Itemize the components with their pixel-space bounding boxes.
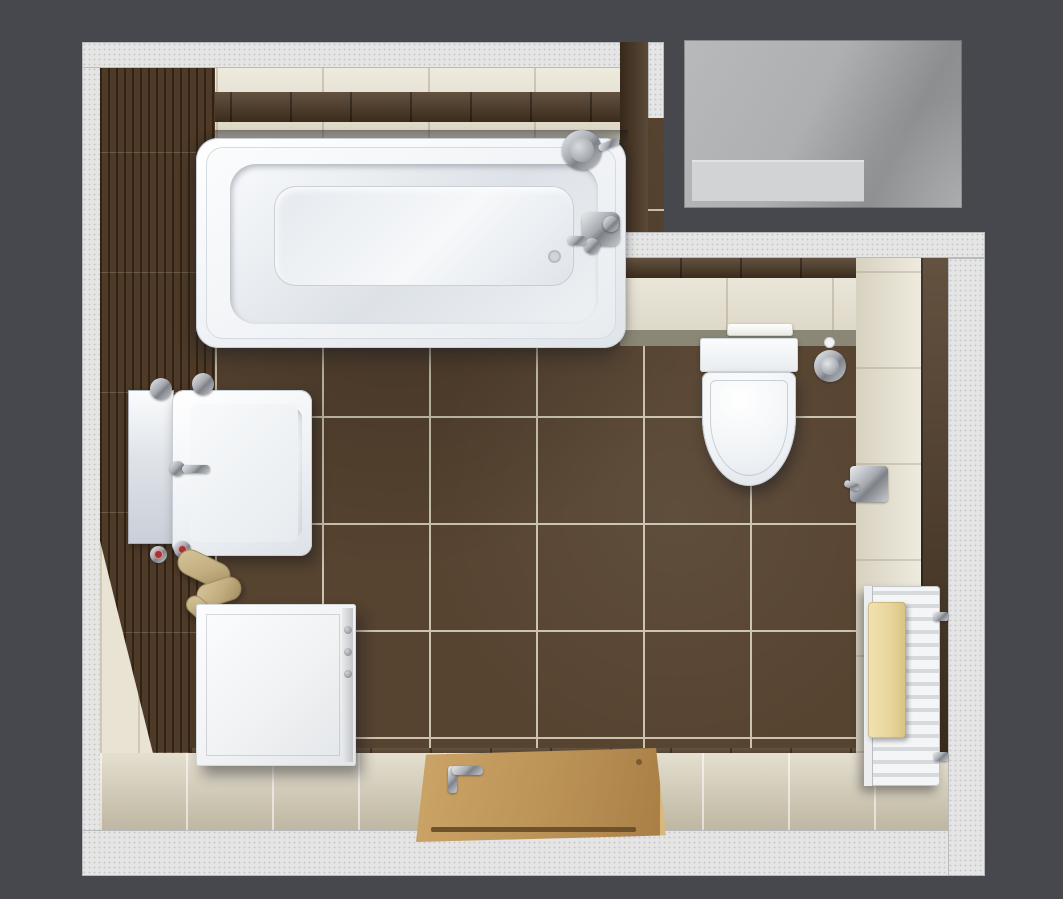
roll-holder-cap [824,337,835,348]
bathtub-drain [548,250,561,263]
washing-machine [196,604,356,766]
angle-valves [150,546,167,563]
flush-plate [727,323,793,336]
radiator-bracket [934,612,948,621]
mirror [128,390,174,544]
shower-head-face [570,138,594,162]
wall-tumblers [150,378,172,400]
mixer-spout [568,236,586,245]
outer-wall-top-right [620,232,985,258]
towel [868,602,906,738]
outer-wall-right [948,258,985,876]
machine-knob-icon [344,648,352,656]
sink-tap-spout [182,465,210,473]
wall-border-strip-top-right [620,258,856,278]
toilet-seat [710,380,788,476]
washbasin-bowl-inner [190,404,298,542]
mixer-handle-icon [584,238,600,254]
washing-machine-lid [206,614,340,756]
washbasin [172,390,312,556]
bathroom-render [0,0,1063,899]
valve-red-handle [154,550,163,559]
wall-tumblers [192,373,214,395]
door-handle-lever [452,766,483,775]
niche-opening [684,40,962,208]
door-vent-slot [431,827,636,832]
bathtub [196,138,626,348]
shower-head [562,130,602,170]
toilet-roll [821,357,839,375]
toilet-roll-holder [814,350,846,382]
outer-wall-top-left [82,42,648,68]
bathtub-well [274,186,574,286]
machine-knob-icon [344,626,352,634]
niche-ledge [692,160,864,202]
door-hinge-icon [636,759,642,765]
mixer-handle-icon [603,216,619,232]
machine-knob-icon [344,670,352,678]
toilet-cistern [700,338,798,372]
radiator-bracket [934,752,948,761]
door [416,748,666,842]
